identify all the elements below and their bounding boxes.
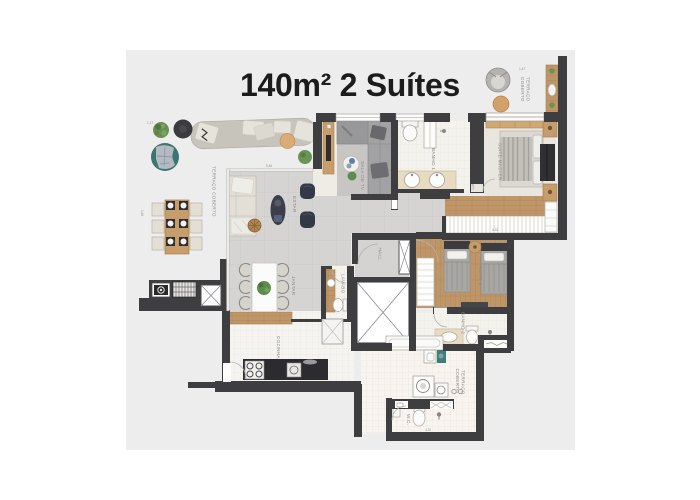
svg-text:5,46: 5,46 xyxy=(266,164,272,168)
svg-text:1,16: 1,16 xyxy=(140,210,144,216)
svg-text:4,32: 4,32 xyxy=(425,428,431,432)
svg-text:HALL: HALL xyxy=(378,248,383,261)
svg-text:COZINHA: COZINHA xyxy=(276,336,281,359)
svg-text:SUITE MASTER: SUITE MASTER xyxy=(498,143,503,181)
svg-text:ESTAR: ESTAR xyxy=(292,196,297,213)
svg-text:4,33: 4,33 xyxy=(492,228,498,232)
svg-text:1,17: 1,17 xyxy=(147,121,153,125)
svg-text:TERRAÇO COBERTO: TERRAÇO COBERTO xyxy=(212,166,217,217)
svg-text:COBERTO: COBERTO xyxy=(520,77,525,102)
svg-text:2,99: 2,99 xyxy=(552,130,556,136)
svg-text:140m² 2 Suítes: 140m² 2 Suítes xyxy=(240,67,460,103)
svg-text:BANHO 2: BANHO 2 xyxy=(461,312,466,334)
svg-text:JANTAR: JANTAR xyxy=(291,276,296,296)
svg-text:SUITE 2: SUITE 2 xyxy=(478,266,483,286)
svg-text:BANHO 1: BANHO 1 xyxy=(431,148,436,170)
svg-text:LAVABO: LAVABO xyxy=(341,274,346,294)
svg-text:1,47: 1,47 xyxy=(519,67,525,71)
svg-text:TERRAÇO: TERRAÇO xyxy=(526,77,531,102)
svg-text:TERRAÇO: TERRAÇO xyxy=(461,370,466,395)
svg-text:W.C.: W.C. xyxy=(406,414,411,425)
svg-text:COBERTO: COBERTO xyxy=(455,369,460,394)
svg-text:2,08: 2,08 xyxy=(471,184,475,190)
svg-text:SALA DE TV: SALA DE TV xyxy=(360,161,365,191)
